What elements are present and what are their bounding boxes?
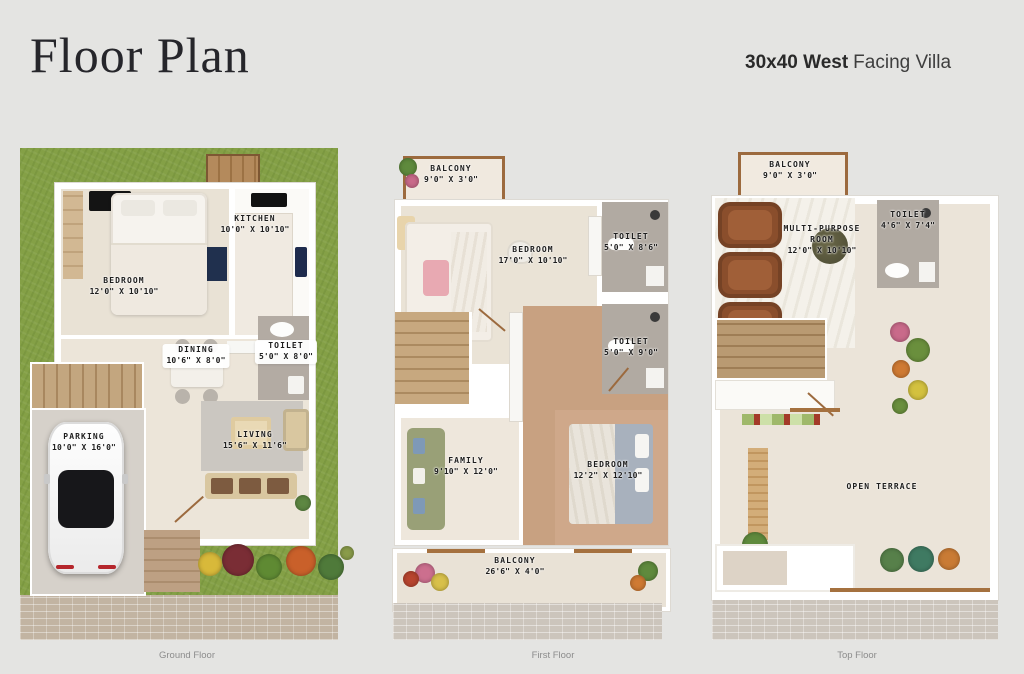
- plant: [403, 571, 419, 587]
- room-label-bedroom2-first: BEDROOM 12'2" X 12'10": [574, 460, 643, 482]
- closet: [588, 216, 602, 276]
- pavement-top: [712, 600, 998, 640]
- subtitle-regular: Facing Villa: [853, 52, 951, 73]
- staircase-first: [395, 312, 472, 404]
- pillow: [163, 200, 197, 216]
- first-floor-plan: BALCONY 9'0" X 3'0" BEDROOM 17'0" X 10'1…: [385, 148, 670, 640]
- toilet-fixture: [885, 263, 909, 278]
- plant: [318, 554, 344, 580]
- plant: [908, 546, 934, 572]
- car-mirror: [44, 474, 50, 484]
- plant: [431, 573, 449, 591]
- sofa-cushion: [413, 438, 425, 454]
- wash-basin: [288, 376, 304, 394]
- caption-ground-floor: Ground Floor: [159, 650, 215, 661]
- plant: [399, 158, 417, 176]
- staircase-top: [715, 318, 827, 380]
- wash-basin: [646, 266, 664, 286]
- shower-head: [650, 210, 660, 220]
- wood-bench: [748, 448, 768, 540]
- plant: [880, 548, 904, 572]
- car-roof: [58, 470, 114, 528]
- pillow: [635, 434, 649, 458]
- pillow: [121, 200, 155, 216]
- plant: [198, 552, 222, 576]
- page-title: Floor Plan: [30, 26, 250, 84]
- recliner-chair: [718, 252, 782, 298]
- cooktop: [251, 193, 287, 207]
- terrace-railing: [830, 588, 990, 592]
- top-house: [712, 196, 998, 600]
- car-mirror: [122, 474, 128, 484]
- plant: [892, 398, 908, 414]
- flower-bed: [198, 542, 354, 592]
- plant-shelf: [742, 414, 820, 425]
- sofa-cushion: [267, 478, 289, 494]
- balcony-threshold: [427, 549, 485, 553]
- room-label-family: FAMILY 9'10" X 12'0": [434, 456, 498, 478]
- caption-top-floor: Top Floor: [837, 650, 877, 661]
- plant: [286, 546, 316, 576]
- plant: [890, 322, 910, 342]
- wash-basin: [919, 262, 935, 282]
- sofa-cushion: [211, 478, 233, 494]
- pavement-ground: [20, 595, 338, 640]
- plant: [256, 554, 282, 580]
- car-taillight: [56, 565, 74, 569]
- recliner-cushion: [728, 210, 772, 240]
- sofa-cushion: [413, 468, 425, 484]
- shower-head: [650, 312, 660, 322]
- toilet-fixture: [270, 322, 294, 337]
- plant: [405, 174, 419, 188]
- wash-basin: [646, 368, 664, 388]
- room-label-dining: DINING 10'6" X 8'0": [163, 344, 230, 368]
- balcony-threshold: [574, 549, 632, 553]
- room-label-kitchen: KITCHEN 10'0" X 10'10": [221, 214, 290, 236]
- pillow: [423, 260, 449, 296]
- top-floor-plan: BALCONY 9'0" X 3'0" MULTI-PURPOSE ROOM 1…: [710, 148, 1000, 640]
- closet: [509, 312, 523, 422]
- plant: [222, 544, 254, 576]
- kitchen-floor: [235, 189, 309, 335]
- plant: [892, 360, 910, 378]
- utility-inner: [723, 551, 787, 585]
- outdoor-steps: [144, 530, 200, 592]
- sofa-cushion: [239, 478, 261, 494]
- room-label-balcony-top-first: BALCONY 9'0" X 3'0": [424, 164, 478, 186]
- room-label-toilet-ground: TOILET 5'0" X 8'0": [255, 340, 317, 364]
- plant: [906, 338, 930, 362]
- room-label-balcony-top-floor: BALCONY 9'0" X 3'0": [763, 160, 817, 182]
- room-label-balcony-bottom-first: BALCONY 26'6" X 4'0": [486, 556, 545, 578]
- caption-first-floor: First Floor: [532, 650, 575, 661]
- room-label-bedroom1-first: BEDROOM 17'0" X 10'10": [499, 245, 568, 267]
- staircase-ground: [30, 362, 144, 410]
- utility-box: [715, 544, 855, 592]
- room-label-toilet-top: TOILET 4'6" X 7'4": [881, 210, 935, 232]
- dining-chair: [175, 389, 190, 404]
- family-sofa: [407, 428, 445, 530]
- plant: [938, 548, 960, 570]
- page-subtitle: 30x40 WestFacing Villa: [745, 52, 951, 74]
- room-label-multipurpose: MULTI-PURPOSE ROOM 12'0" X 10'10": [769, 224, 875, 256]
- dresser: [205, 247, 227, 281]
- room-label-toilet2-first: TOILET 5'0" X 9'0": [604, 337, 658, 359]
- plant: [340, 546, 354, 560]
- plant: [295, 495, 311, 511]
- room-label-toilet1-first: TOILET 5'0" X 8'6": [604, 232, 658, 254]
- recliner-cushion: [728, 260, 772, 290]
- car-taillight: [98, 565, 116, 569]
- stair-landing: [715, 380, 835, 410]
- sofa-cushion: [413, 498, 425, 514]
- wardrobe: [63, 191, 83, 279]
- pavement-first: [393, 603, 662, 640]
- subtitle-bold: 30x40 West: [745, 52, 848, 73]
- room-label-parking: PARKING 10'0" X 16'0": [52, 432, 116, 454]
- plant: [908, 380, 928, 400]
- room-label-living: LIVING 15'6" X 11'6": [223, 430, 287, 452]
- floor-plan-page: Floor Plan 30x40 WestFacing Villa: [0, 0, 1024, 674]
- terrace-door-threshold: [790, 408, 840, 412]
- sink: [295, 247, 307, 277]
- plant: [630, 575, 646, 591]
- ground-floor-plan: KITCHEN 10'0" X 10'10" BEDROOM 12'0" X 1…: [20, 148, 338, 640]
- room-label-open-terrace: OPEN TERRACE: [847, 482, 918, 493]
- sofa: [205, 473, 297, 499]
- room-label-bedroom-ground: BEDROOM 12'0" X 10'10": [90, 276, 159, 298]
